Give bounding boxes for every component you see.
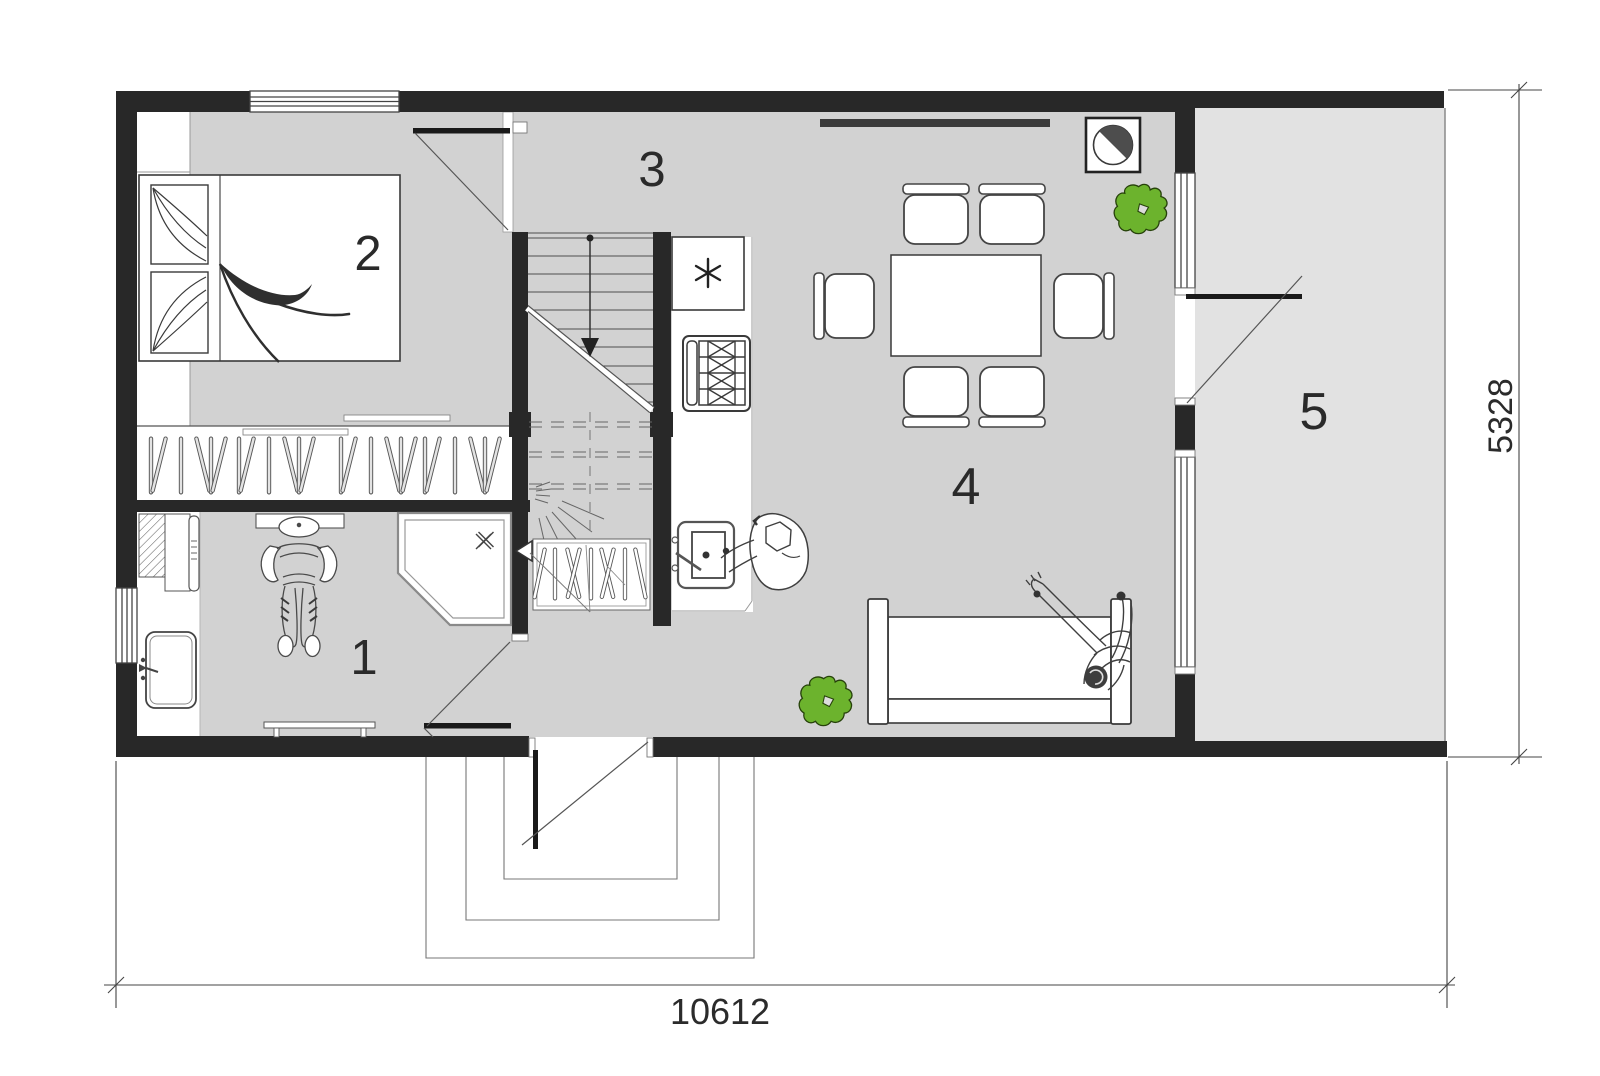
svg-text:3: 3 xyxy=(638,143,665,197)
svg-text:5: 5 xyxy=(1300,383,1329,441)
svg-text:2: 2 xyxy=(354,227,381,281)
svg-text:1: 1 xyxy=(350,631,377,685)
svg-text:5328: 5328 xyxy=(1482,378,1520,454)
svg-text:4: 4 xyxy=(952,458,981,516)
svg-text:10612: 10612 xyxy=(670,991,770,1032)
